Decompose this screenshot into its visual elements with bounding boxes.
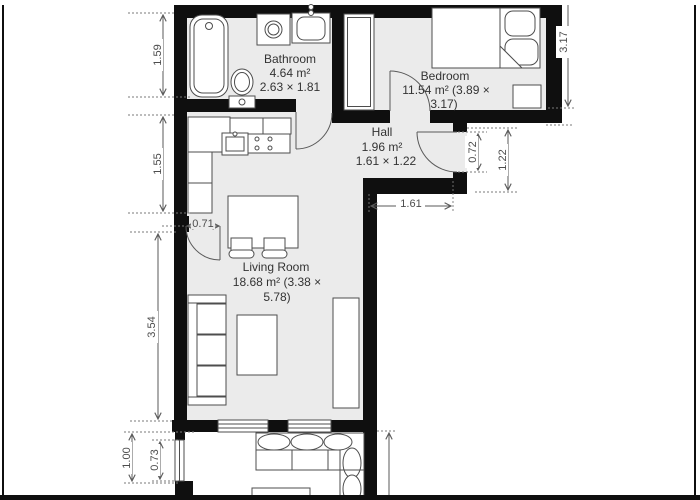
hall-area: 1.96 m² bbox=[362, 140, 403, 154]
dim-label-left-0: 1.59 bbox=[152, 44, 164, 65]
frame-bottom-bar bbox=[0, 495, 700, 500]
bathtub bbox=[190, 15, 228, 97]
bathroom-size: 2.63 × 1.81 bbox=[260, 80, 321, 94]
living-window-1 bbox=[218, 420, 268, 432]
living-room-size: 5.78) bbox=[263, 290, 290, 304]
dining-chair-2 bbox=[262, 238, 287, 258]
bedroom-door-opening bbox=[390, 110, 430, 123]
hall-name: Hall bbox=[372, 125, 393, 139]
wall-balcony-left-top bbox=[175, 432, 185, 440]
bedroom-size: 3.17) bbox=[430, 97, 457, 111]
dim-label-bottom-0: 1.61 bbox=[400, 198, 421, 210]
kitchen-sink bbox=[222, 132, 248, 155]
frame-left-line bbox=[2, 5, 4, 495]
bathroom-name: Bathroom bbox=[264, 52, 316, 66]
dim-label-left-3: 1.00 bbox=[121, 447, 133, 468]
double-bed bbox=[432, 8, 540, 68]
hall-size: 1.61 × 1.22 bbox=[356, 154, 417, 168]
dim-label-right-2: 1.22 bbox=[497, 149, 509, 170]
floorplan-canvas: 1.59 1.55 3.54 1.00 0.73 3.17 0.72 1.22 … bbox=[0, 0, 700, 500]
dim-label-left-1: 1.55 bbox=[152, 153, 164, 174]
bathroom-door-opening bbox=[296, 99, 332, 112]
living-window-2 bbox=[288, 420, 331, 432]
floorplan-drawing: 1.59 1.55 3.54 1.00 0.73 3.17 0.72 1.22 … bbox=[0, 0, 700, 500]
dining-chair-1 bbox=[229, 238, 254, 258]
balcony-window bbox=[175, 440, 184, 481]
wall-living-bottom-1 bbox=[172, 420, 218, 432]
wardrobe bbox=[344, 14, 374, 110]
coffee-table bbox=[237, 315, 277, 375]
bedroom-name: Bedroom bbox=[421, 69, 470, 83]
bathroom-area: 4.64 m² bbox=[270, 66, 311, 80]
bedroom-area: 11.54 m² (3.89 × bbox=[402, 83, 490, 97]
wall-entrance-upper-stub bbox=[453, 123, 467, 132]
wall-living-bottom-3 bbox=[331, 420, 377, 432]
tv-sideboard bbox=[333, 298, 359, 408]
wall-bathroom-right bbox=[332, 5, 344, 112]
wall-balcony-right bbox=[363, 432, 377, 496]
washing-machine bbox=[257, 14, 290, 45]
toilet bbox=[229, 69, 255, 108]
living-room-area: 18.68 m² (3.38 × bbox=[233, 275, 321, 289]
dim-label-right-0: 3.17 bbox=[558, 31, 570, 52]
wall-bedroom-right bbox=[546, 5, 562, 123]
dim-label-left-4: 0.73 bbox=[149, 449, 161, 470]
dim-label-right-1: 0.72 bbox=[467, 141, 479, 162]
wall-bedroom-bottom-right bbox=[430, 110, 546, 123]
nightstand bbox=[513, 85, 541, 108]
wall-hall-bottom bbox=[363, 178, 467, 194]
entrance-door-opening bbox=[453, 132, 467, 172]
wall-living-right bbox=[363, 178, 377, 432]
sofa bbox=[188, 295, 226, 405]
wall-bedroom-bottom-left bbox=[332, 110, 390, 123]
dim-label-bottom-1: 0.71 bbox=[192, 218, 213, 230]
wall-living-bottom-2 bbox=[268, 420, 288, 432]
living-room-name: Living Room bbox=[243, 260, 310, 274]
wall-kitchen-door-stub bbox=[174, 216, 189, 232]
frame-right-line bbox=[694, 5, 696, 495]
dim-label-left-2: 3.54 bbox=[146, 316, 158, 337]
